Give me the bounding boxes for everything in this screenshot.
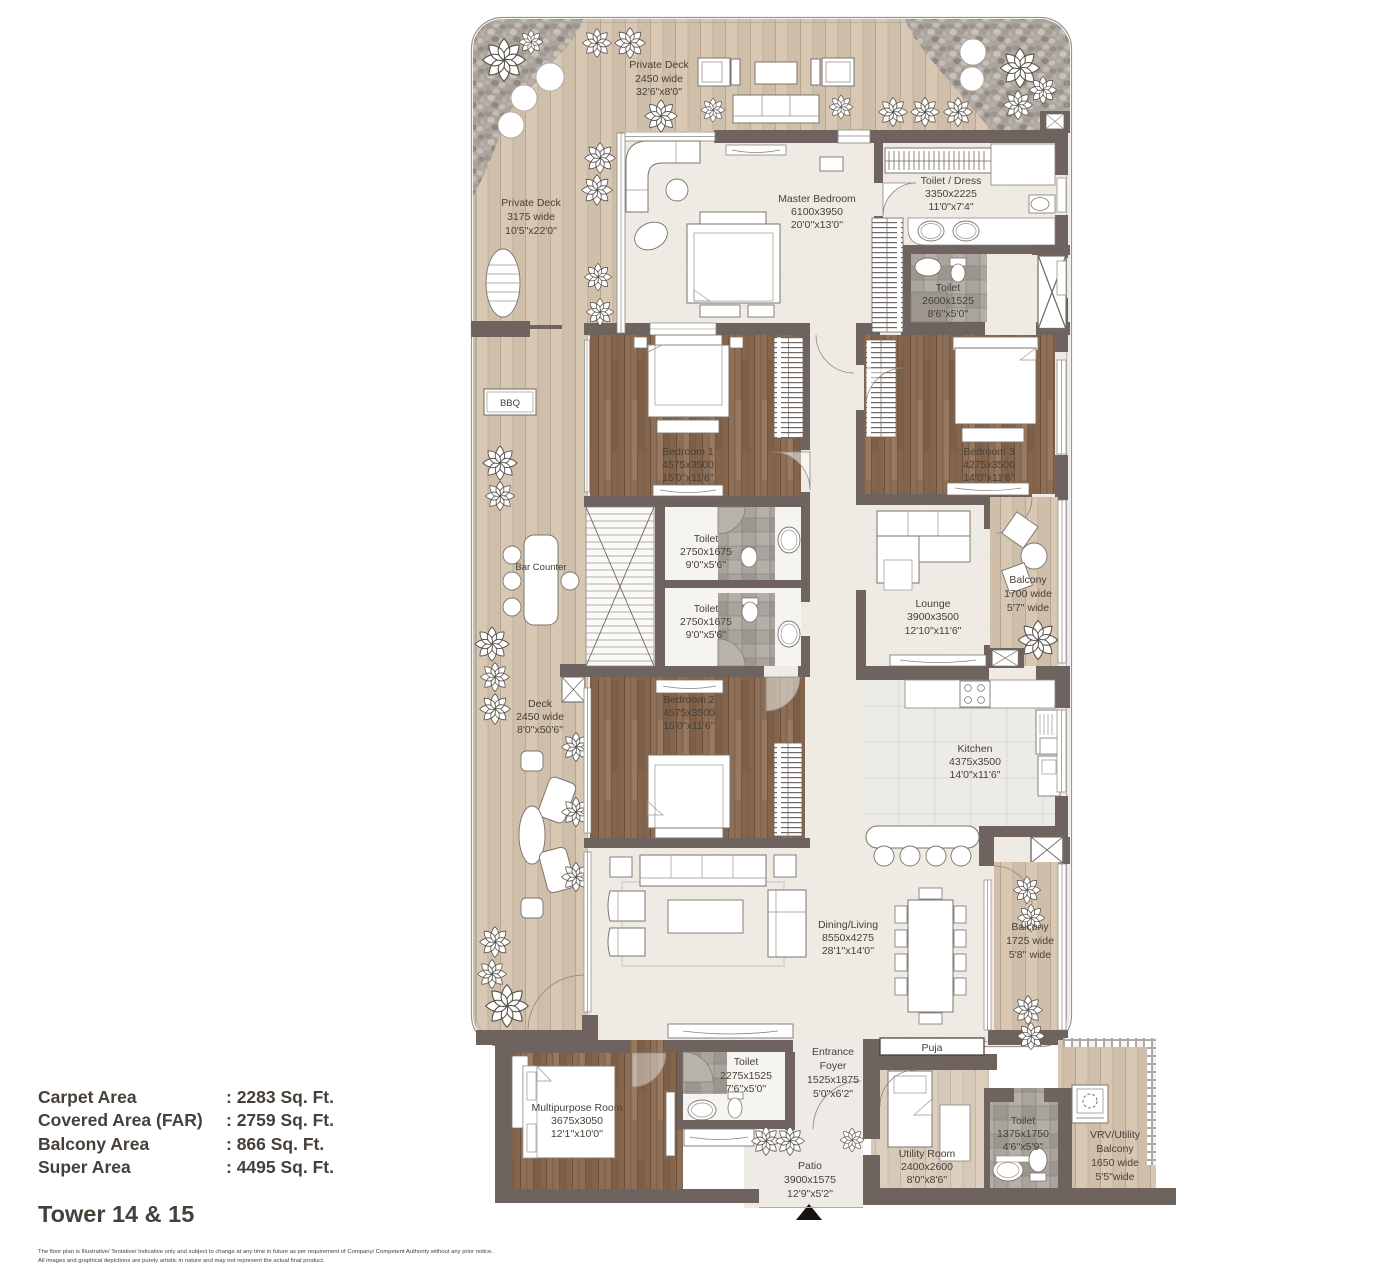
- svg-text:2450 wide: 2450 wide: [635, 73, 683, 85]
- svg-text:12'1''x10'0'': 12'1''x10'0'': [551, 1128, 603, 1140]
- svg-text:Kitchen: Kitchen: [957, 743, 992, 755]
- svg-text:4575x3500: 4575x3500: [663, 707, 715, 719]
- svg-text:32'6"x8'0": 32'6"x8'0": [636, 86, 682, 98]
- svg-text:8'0''x8'6'': 8'0''x8'6'': [907, 1174, 948, 1186]
- svg-text:3900x1575: 3900x1575: [784, 1174, 836, 1186]
- svg-text:1650 wide: 1650 wide: [1091, 1157, 1139, 1169]
- svg-text:Toilet: Toilet: [694, 603, 719, 615]
- svg-text:Balcony: Balcony: [1009, 574, 1047, 586]
- svg-text:20'0''x13'0'': 20'0''x13'0'': [791, 219, 843, 231]
- svg-text:1525x1875: 1525x1875: [807, 1074, 859, 1086]
- svg-text:Balcony: Balcony: [1096, 1143, 1134, 1155]
- svg-text:1725 wide: 1725 wide: [1006, 935, 1054, 947]
- svg-text:Toilet: Toilet: [734, 1056, 759, 1068]
- svg-text:1700 wide: 1700 wide: [1004, 588, 1052, 600]
- svg-text:Toilet: Toilet: [694, 533, 719, 545]
- svg-text:2750x1675: 2750x1675: [680, 546, 732, 558]
- svg-text:Balcony: Balcony: [1011, 921, 1049, 933]
- svg-text:15'0''x11'6'': 15'0''x11'6'': [663, 720, 715, 732]
- svg-text:7'6''x5'0'': 7'6''x5'0'': [726, 1083, 767, 1095]
- svg-text:Master Bedroom: Master Bedroom: [778, 193, 856, 205]
- svg-text:28'1''x14'0'': 28'1''x14'0'': [822, 945, 874, 957]
- svg-text:3900x3500: 3900x3500: [907, 611, 959, 623]
- svg-text:2600x1525: 2600x1525: [922, 295, 974, 307]
- svg-text:12'10"x11'6": 12'10"x11'6": [905, 625, 962, 637]
- svg-text:Carpet Area: Carpet Area: [38, 1087, 137, 1107]
- svg-text:Balcony Area: Balcony Area: [38, 1134, 149, 1154]
- svg-text:4'6''x5'9'': 4'6''x5'9'': [1003, 1141, 1044, 1153]
- svg-text:Puja: Puja: [921, 1042, 942, 1054]
- svg-text:8'6''x5'0'': 8'6''x5'0'': [928, 308, 969, 320]
- svg-text:Tower 14 & 15: Tower 14 & 15: [38, 1201, 194, 1227]
- svg-text:Private Deck: Private Deck: [501, 197, 561, 209]
- svg-text:Bedroom 3: Bedroom 3: [963, 446, 1015, 458]
- svg-text:Dining/Living: Dining/Living: [818, 919, 878, 931]
- svg-text:6100x3950: 6100x3950: [791, 206, 843, 218]
- svg-text:2275x1525: 2275x1525: [720, 1070, 772, 1082]
- svg-text:Bedroom 2: Bedroom 2: [663, 694, 715, 706]
- svg-text:Multipurpose Room: Multipurpose Room: [531, 1102, 622, 1114]
- svg-text:2750x1675: 2750x1675: [680, 616, 732, 628]
- svg-text:Super Area: Super Area: [38, 1157, 131, 1177]
- svg-text:: 2283 Sq. Ft.: : 2283 Sq. Ft.: [226, 1087, 334, 1107]
- svg-text:Covered Area (FAR): Covered Area (FAR): [38, 1110, 203, 1130]
- svg-text:Lounge: Lounge: [915, 598, 950, 610]
- svg-text:5'5"wide: 5'5"wide: [1095, 1171, 1134, 1183]
- svg-text:4575x3500: 4575x3500: [662, 459, 714, 471]
- svg-text:9'0''x5'6'': 9'0''x5'6'': [686, 559, 727, 571]
- svg-text:15'0''x11'6'': 15'0''x11'6'': [662, 472, 714, 484]
- svg-text:3175 wide: 3175 wide: [507, 211, 555, 223]
- svg-text:10'5"x22'0": 10'5"x22'0": [505, 225, 557, 237]
- svg-text:1375x1750: 1375x1750: [997, 1128, 1049, 1140]
- svg-text:11'0"x7'4": 11'0"x7'4": [928, 201, 973, 213]
- svg-text:All images and graphical depic: All images and graphical depictions are …: [38, 1258, 325, 1264]
- svg-text:: 866 Sq. Ft.: : 866 Sq. Ft.: [226, 1134, 324, 1154]
- svg-text:Toilet: Toilet: [1011, 1115, 1036, 1127]
- svg-text:4275x3500: 4275x3500: [963, 459, 1015, 471]
- svg-text:Toilet / Dress: Toilet / Dress: [921, 175, 982, 187]
- svg-text:Toilet: Toilet: [936, 282, 961, 294]
- svg-text:Entrance: Entrance: [812, 1046, 854, 1058]
- svg-text:14'0"x11'6": 14'0"x11'6": [950, 769, 1001, 781]
- svg-text:: 2759 Sq. Ft.: : 2759 Sq. Ft.: [226, 1110, 334, 1130]
- svg-text:12'9"x5'2": 12'9"x5'2": [787, 1188, 833, 1200]
- svg-text:14'0''x11'6'': 14'0''x11'6'': [963, 472, 1015, 484]
- svg-text:Private Deck: Private Deck: [629, 59, 689, 71]
- svg-text:2450 wide: 2450 wide: [516, 711, 564, 723]
- svg-text:Bedroom 1: Bedroom 1: [662, 446, 714, 458]
- svg-text:Deck: Deck: [528, 698, 553, 710]
- svg-text:5'0"x6'2": 5'0"x6'2": [813, 1088, 853, 1100]
- svg-text:8550x4275: 8550x4275: [822, 932, 874, 944]
- svg-text:Bar Counter: Bar Counter: [515, 562, 566, 573]
- svg-text:Patio: Patio: [798, 1160, 822, 1172]
- svg-text:5'8'' wide: 5'8'' wide: [1009, 949, 1051, 961]
- svg-text:3350x2225: 3350x2225: [925, 188, 977, 200]
- svg-text:5'7'' wide: 5'7'' wide: [1007, 602, 1049, 614]
- svg-text:8'0"x50'6": 8'0"x50'6": [517, 724, 563, 736]
- svg-text:4375x3500: 4375x3500: [949, 756, 1001, 768]
- svg-text:2400x2600: 2400x2600: [901, 1161, 953, 1173]
- svg-text:3675x3050: 3675x3050: [551, 1115, 603, 1127]
- svg-text:VRV/Utility: VRV/Utility: [1090, 1129, 1141, 1141]
- svg-text:9'0''x5'6'': 9'0''x5'6'': [686, 629, 727, 641]
- svg-text:The floor plan is Illustrative: The floor plan is Illustrative/ Tentativ…: [38, 1249, 493, 1255]
- svg-text:BBQ: BBQ: [500, 398, 520, 409]
- svg-text:Utility Room: Utility Room: [899, 1148, 956, 1160]
- svg-text:Foyer: Foyer: [820, 1060, 847, 1072]
- svg-text:: 4495 Sq. Ft.: : 4495 Sq. Ft.: [226, 1157, 334, 1177]
